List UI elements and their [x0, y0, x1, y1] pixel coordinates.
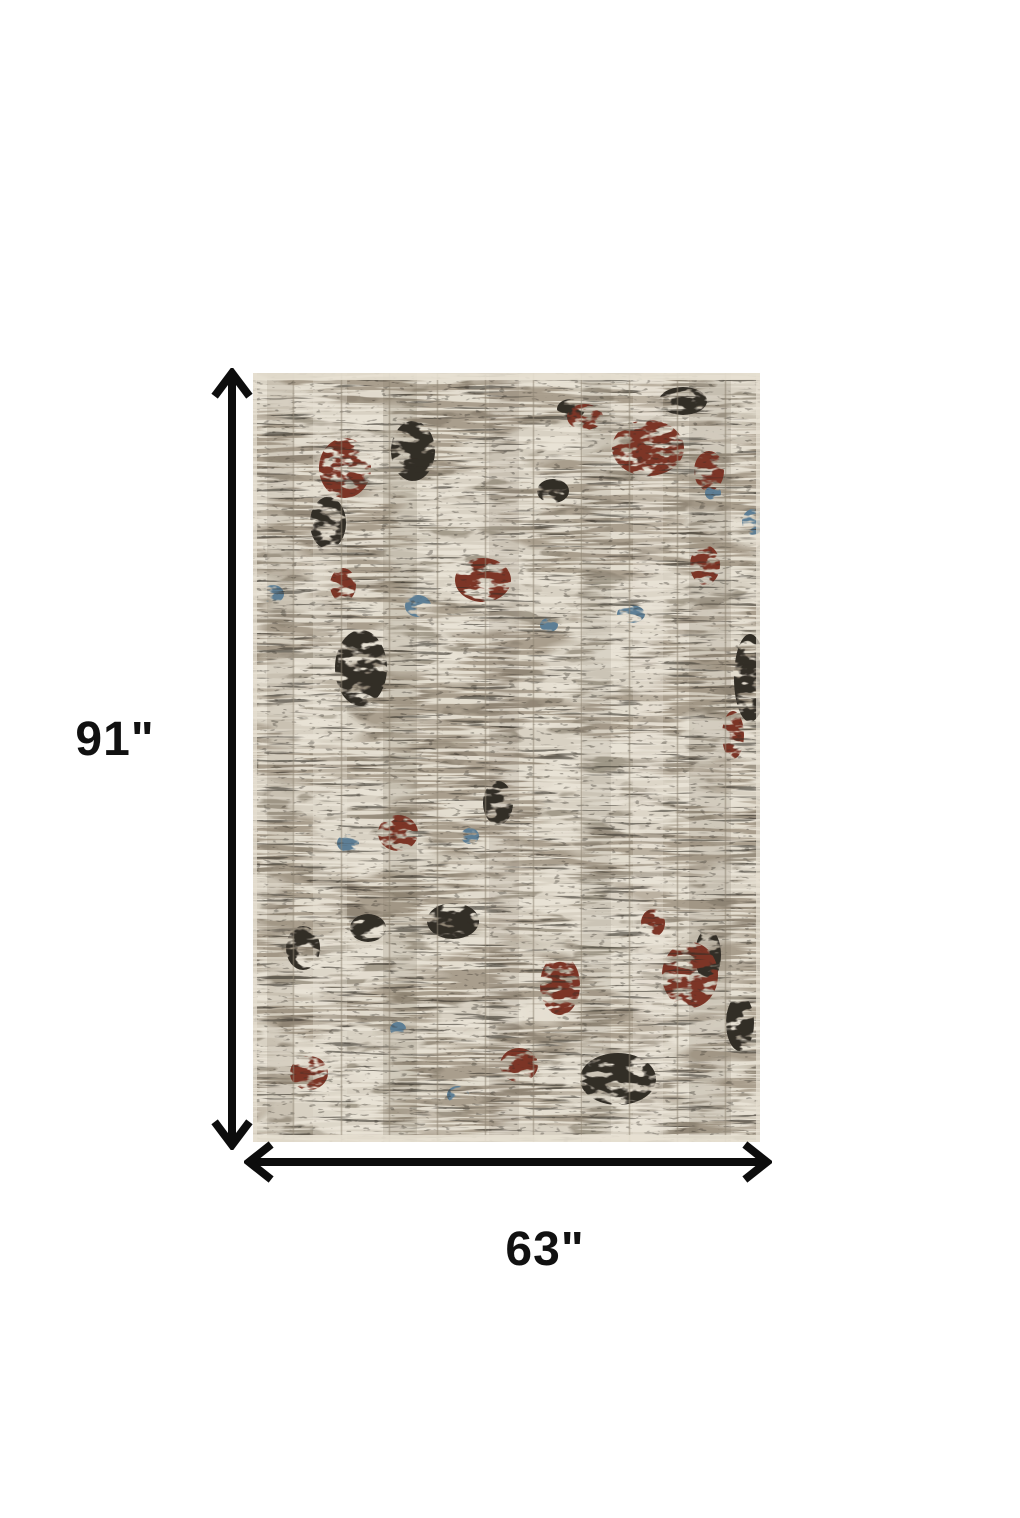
- width-arrow-strokes: [249, 1147, 767, 1177]
- height-arrow-strokes: [217, 373, 247, 1145]
- width-dimension-arrow: [244, 1141, 772, 1183]
- selvedge-left: [253, 373, 257, 1142]
- rug-speckle-grain: [253, 373, 760, 1142]
- product-dimension-image: 91": [0, 0, 1020, 1518]
- height-dimension-arrow: [211, 368, 253, 1150]
- selvedge-top: [253, 373, 760, 380]
- selvedge-right: [756, 373, 760, 1142]
- height-dimension-label: 91": [50, 716, 180, 764]
- rug-image: [253, 373, 760, 1142]
- rug-texture: [253, 373, 760, 1142]
- width-dimension-label: 63": [476, 1226, 614, 1274]
